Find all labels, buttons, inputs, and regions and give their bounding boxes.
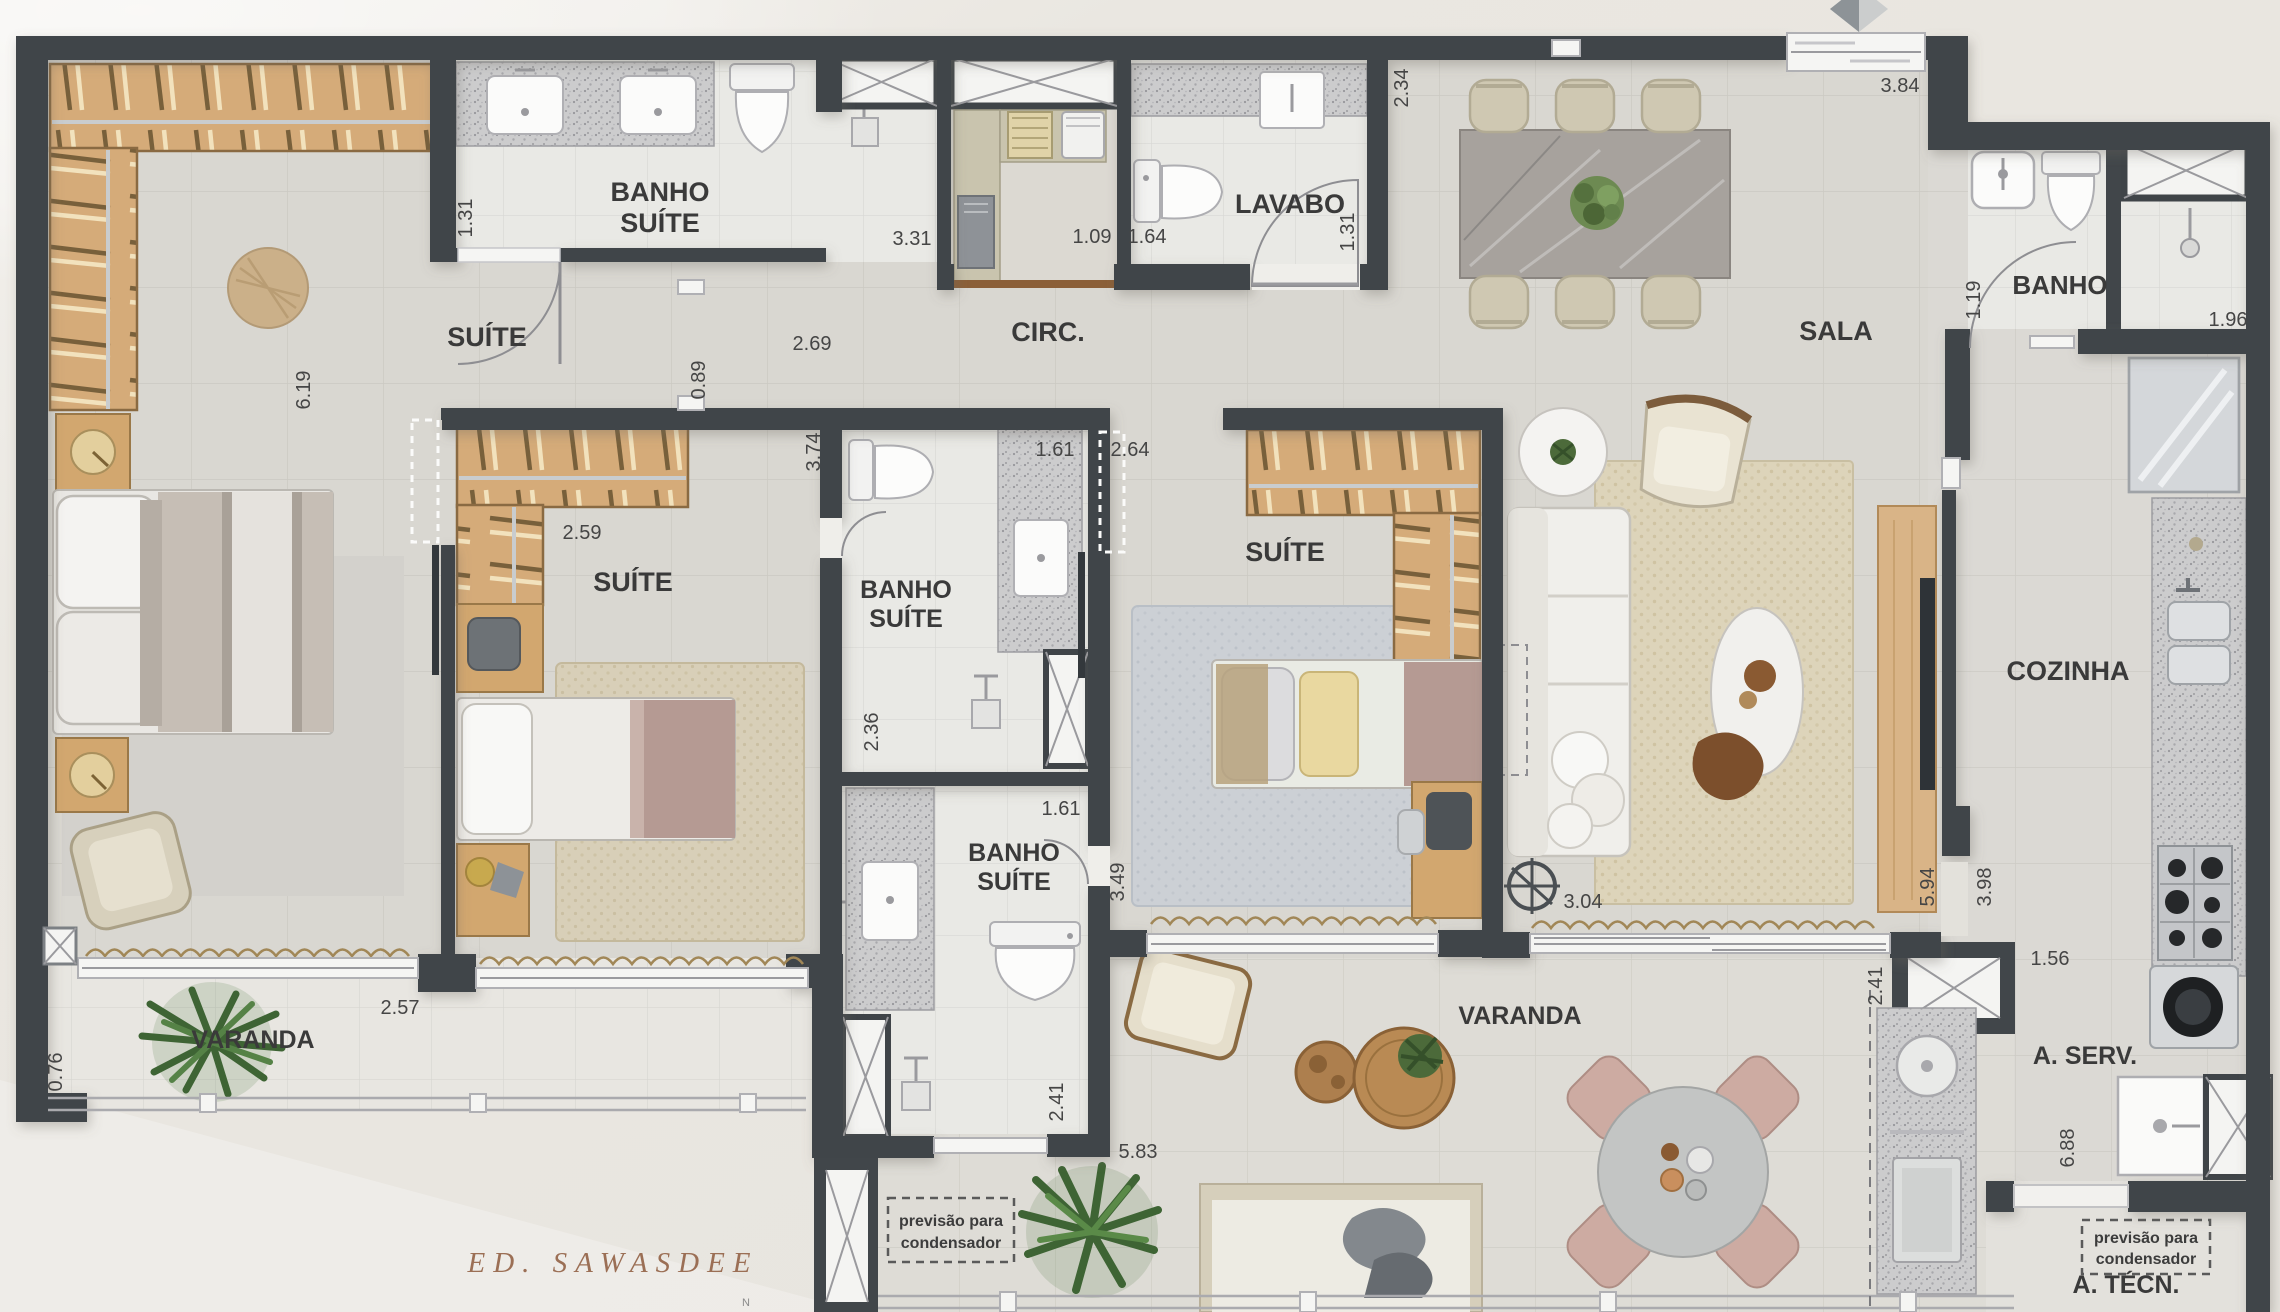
svg-text:1.64: 1.64: [1128, 226, 1167, 248]
svg-text:BANHO: BANHO: [611, 177, 710, 207]
svg-text:2.41: 2.41: [1046, 1083, 1068, 1122]
svg-text:SUÍTE: SUÍTE: [977, 867, 1051, 896]
svg-text:1.96: 1.96: [2209, 309, 2248, 331]
svg-text:2.34: 2.34: [1391, 69, 1413, 108]
svg-text:BANHO: BANHO: [968, 839, 1060, 867]
svg-text:condensador: condensador: [901, 1235, 1001, 1252]
svg-text:condensador: condensador: [2096, 1251, 2196, 1268]
svg-text:5.83: 5.83: [1119, 1141, 1158, 1163]
svg-text:1.31: 1.31: [455, 199, 477, 238]
svg-text:3.31: 3.31: [893, 228, 932, 250]
svg-text:previsão para: previsão para: [899, 1213, 1003, 1230]
svg-text:SUÍTE: SUÍTE: [869, 604, 943, 633]
svg-text:LAVABO: LAVABO: [1235, 189, 1345, 219]
svg-text:1.31: 1.31: [1337, 213, 1359, 252]
svg-text:SUÍTE: SUÍTE: [447, 321, 527, 352]
svg-text:6.88: 6.88: [2057, 1129, 2079, 1168]
svg-text:3.49: 3.49: [1107, 863, 1129, 902]
svg-text:VARANDA: VARANDA: [191, 1026, 314, 1054]
svg-text:0.76: 0.76: [45, 1053, 67, 1092]
svg-text:SUÍTE: SUÍTE: [593, 566, 673, 597]
svg-text:2.41: 2.41: [1865, 967, 1887, 1006]
svg-text:A. SERV.: A. SERV.: [2033, 1042, 2137, 1070]
svg-text:COZINHA: COZINHA: [2007, 656, 2130, 686]
svg-text:3.04: 3.04: [1564, 891, 1603, 913]
svg-text:1.19: 1.19: [1963, 281, 1985, 320]
svg-text:1.09: 1.09: [1073, 226, 1112, 248]
svg-text:2.57: 2.57: [381, 997, 420, 1019]
svg-text:5.94: 5.94: [1917, 868, 1939, 907]
svg-text:1.56: 1.56: [2031, 948, 2070, 970]
svg-text:2.64: 2.64: [1111, 439, 1150, 461]
svg-text:previsão para: previsão para: [2094, 1230, 2198, 1247]
svg-text:SUÍTE: SUÍTE: [1245, 536, 1325, 567]
svg-text:N: N: [742, 1297, 750, 1309]
svg-text:3.84: 3.84: [1881, 75, 1920, 97]
svg-text:SUÍTE: SUÍTE: [620, 207, 700, 238]
svg-text:3.74: 3.74: [803, 433, 825, 472]
svg-text:2.59: 2.59: [563, 522, 602, 544]
svg-text:ED. SAWASDEE: ED. SAWASDEE: [466, 1247, 758, 1279]
svg-text:3.98: 3.98: [1974, 868, 1996, 907]
svg-text:1.61: 1.61: [1036, 439, 1075, 461]
svg-text:BANHO: BANHO: [2012, 270, 2107, 300]
svg-text:SALA: SALA: [1799, 316, 1873, 346]
svg-text:BANHO: BANHO: [860, 576, 952, 604]
svg-text:A. TÉCN.: A. TÉCN.: [2073, 1270, 2180, 1299]
svg-text:1.61: 1.61: [1042, 798, 1081, 820]
svg-text:VARANDA: VARANDA: [1458, 1002, 1581, 1030]
svg-text:CIRC.: CIRC.: [1011, 317, 1085, 347]
svg-text:2.69: 2.69: [793, 333, 832, 355]
svg-text:6.19: 6.19: [293, 371, 315, 410]
svg-text:2.36: 2.36: [861, 713, 883, 752]
svg-text:0.89: 0.89: [688, 361, 710, 400]
